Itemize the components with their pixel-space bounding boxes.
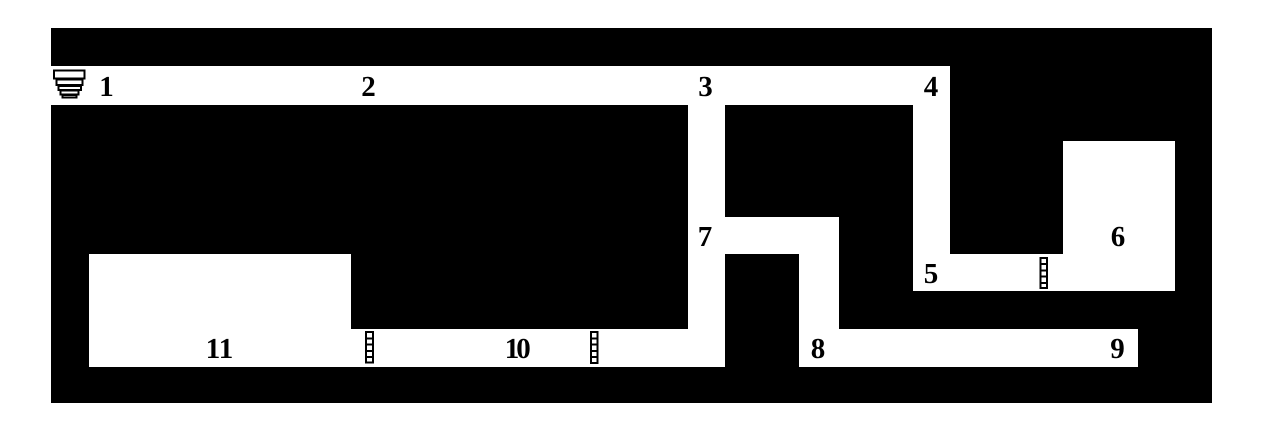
svg-text:2: 2 xyxy=(361,71,376,103)
svg-text:5: 5 xyxy=(924,258,939,290)
svg-text:8: 8 xyxy=(811,333,826,365)
svg-text:6: 6 xyxy=(1111,221,1126,253)
svg-text:9: 9 xyxy=(1110,333,1125,365)
svg-text:0: 0 xyxy=(516,333,531,365)
svg-text:3: 3 xyxy=(698,71,713,103)
svg-text:4: 4 xyxy=(924,71,939,103)
svg-text:7: 7 xyxy=(698,221,713,253)
svg-text:1: 1 xyxy=(219,333,234,365)
svg-text:1: 1 xyxy=(99,71,114,103)
